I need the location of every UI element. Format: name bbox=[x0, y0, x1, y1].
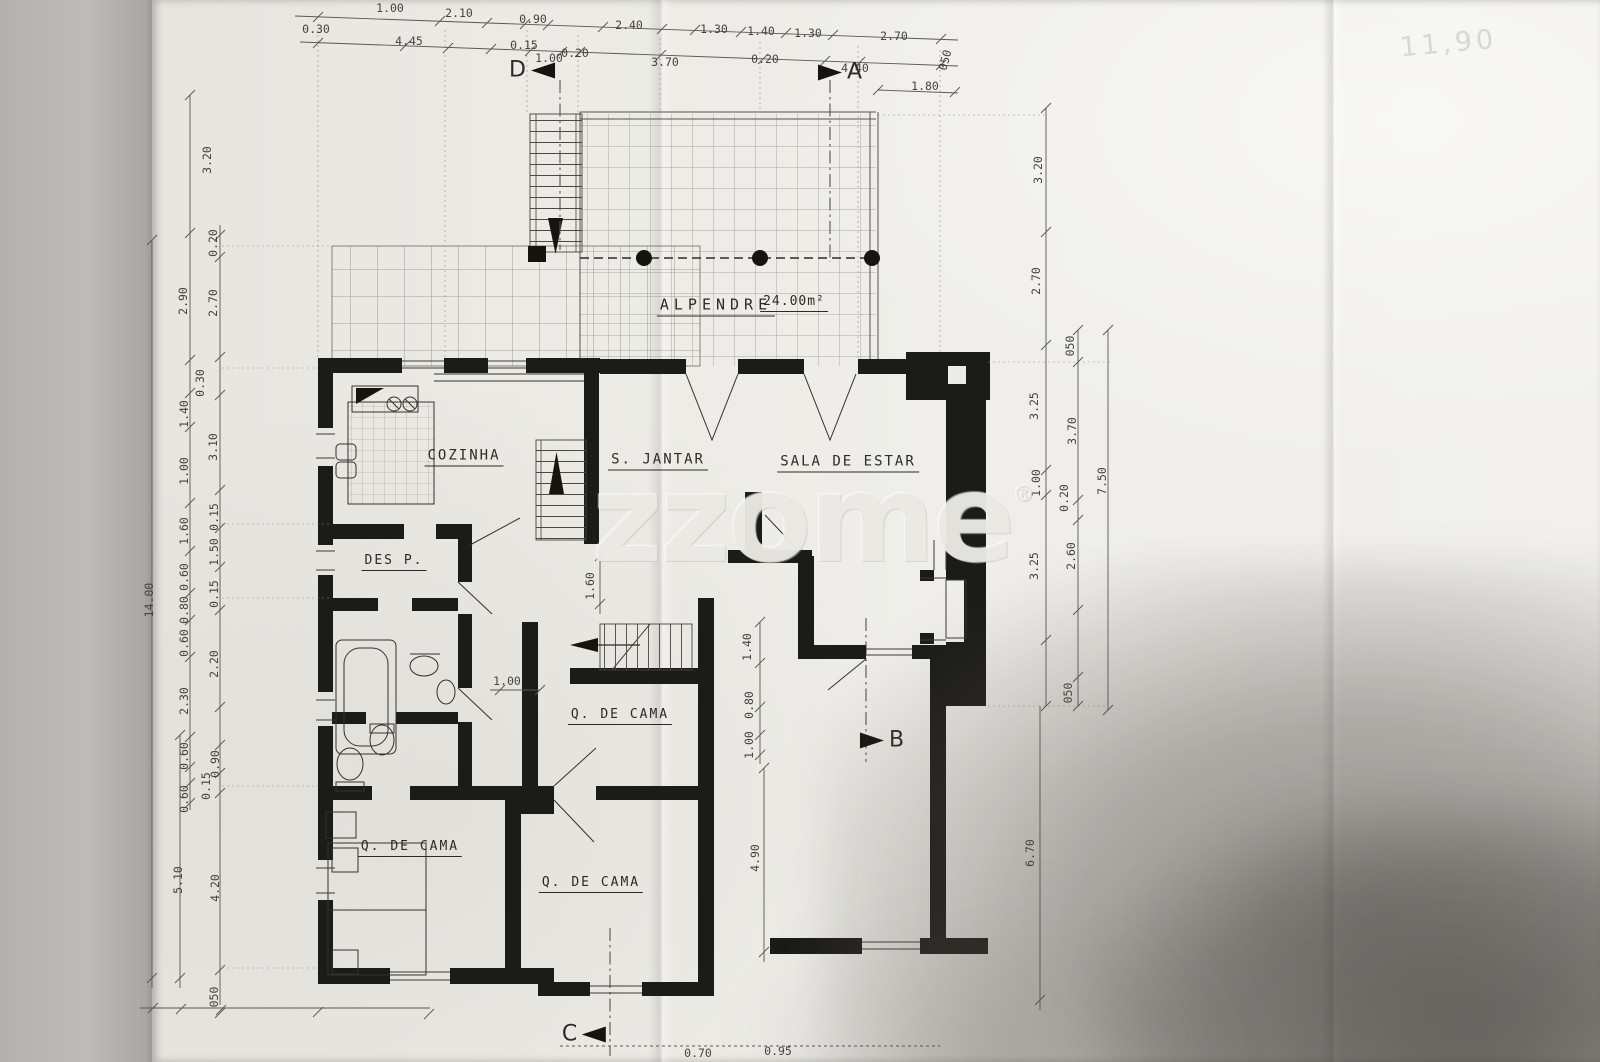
dimension-label: 3.20 bbox=[200, 146, 214, 174]
dimension-label: 0.60 bbox=[177, 563, 191, 591]
dimension-label: 1.80 bbox=[911, 79, 939, 93]
entrance-stairs bbox=[528, 114, 582, 262]
dimension-label: 0.15 bbox=[207, 503, 221, 531]
corner-window bbox=[948, 366, 966, 384]
room-label: ALPENDRE bbox=[657, 296, 775, 317]
dimension-label: 1.40 bbox=[747, 24, 775, 38]
dimension-label: 0.60 bbox=[177, 629, 191, 657]
dimension-label: 1.00 bbox=[376, 1, 404, 15]
section-marker-a: A bbox=[818, 60, 862, 85]
floor-plan-photo: 1.002.100.902.401.301.401.302.700.304.45… bbox=[0, 0, 1600, 1062]
dimension-label: 2.60 bbox=[1064, 542, 1078, 570]
dimension-label: 0.90 bbox=[519, 12, 547, 26]
dimension-label: 050 bbox=[1061, 683, 1075, 704]
dimension-label: 050 bbox=[207, 987, 221, 1008]
dimension-label: 0.60 bbox=[177, 742, 191, 770]
section-marker-b: B bbox=[860, 728, 904, 753]
zome-watermark: zzome® bbox=[592, 448, 1035, 590]
dimension-label: 1.00 bbox=[742, 731, 756, 759]
room-label: Q. DE CAMA bbox=[568, 707, 672, 725]
section-letter: C bbox=[562, 1022, 577, 1047]
dimension-label: 050 bbox=[1063, 336, 1077, 357]
dimension-label: 5.10 bbox=[171, 866, 185, 894]
room-label: COZINHA bbox=[424, 448, 503, 467]
dimension-label: 1.50 bbox=[207, 538, 221, 566]
dimension-label: 0.20 bbox=[751, 52, 779, 66]
dimension-label: 0.70 bbox=[684, 1046, 712, 1060]
dimension-label: 2.10 bbox=[445, 6, 473, 20]
section-letter: D bbox=[509, 58, 526, 83]
section-flag-icon bbox=[582, 1026, 606, 1042]
dimension-label: 3.10 bbox=[206, 433, 220, 461]
dimension-label: 2.20 bbox=[207, 650, 221, 678]
dimension-label: 1.40 bbox=[177, 400, 191, 428]
dimension-label: 2.40 bbox=[615, 18, 643, 32]
room-label: DES P. bbox=[362, 553, 427, 571]
section-marker-c: C bbox=[562, 1022, 606, 1047]
dimension-label: 2.70 bbox=[206, 289, 220, 317]
dimension-label: 7.50 bbox=[1095, 467, 1109, 495]
dimension-label: 2.90 bbox=[176, 287, 190, 315]
dimension-label: 0.30 bbox=[302, 22, 330, 36]
terrace-tile-grids bbox=[332, 112, 880, 368]
registered-mark-icon: ® bbox=[1013, 482, 1035, 507]
dimension-label: 0.15 bbox=[207, 580, 221, 608]
dimension-label: 3.20 bbox=[1031, 156, 1045, 184]
section-flag-icon bbox=[860, 732, 884, 748]
dimension-label: 3.25 bbox=[1027, 392, 1041, 420]
dimension-label: 1.00 bbox=[493, 674, 521, 688]
dimension-label: 1.00 bbox=[177, 457, 191, 485]
room-label: Q. DE CAMA bbox=[539, 875, 643, 893]
dimension-label: 0.20 bbox=[561, 46, 589, 60]
dimension-label: 0.15 bbox=[510, 38, 538, 52]
dimension-label: 4.90 bbox=[748, 844, 762, 872]
dimension-label: 3.70 bbox=[651, 55, 679, 69]
room-label: Q. DE CAMA bbox=[358, 839, 462, 857]
dimension-label: 0.80 bbox=[742, 691, 756, 719]
beds bbox=[326, 812, 426, 975]
dimension-label: 6.70 bbox=[1023, 839, 1037, 867]
dimension-label: 4.20 bbox=[208, 874, 222, 902]
dimension-label: 0.30 bbox=[193, 369, 207, 397]
section-letter: B bbox=[889, 728, 904, 753]
dimension-label: 2.70 bbox=[880, 29, 908, 43]
dimension-label: 0.20 bbox=[206, 229, 220, 257]
dimension-label: 0.60 bbox=[177, 785, 191, 813]
dimension-label: 1.30 bbox=[794, 26, 822, 40]
section-flag-icon bbox=[531, 62, 555, 78]
dimension-label: 1.40 bbox=[740, 633, 754, 661]
dimension-label: 0.95 bbox=[764, 1044, 792, 1058]
dimension-label: 2.30 bbox=[177, 687, 191, 715]
dimension-label: 14.00 bbox=[142, 583, 156, 618]
dimension-label: 4.45 bbox=[395, 34, 423, 48]
section-flag-icon bbox=[818, 64, 842, 80]
dimension-label: 3.70 bbox=[1065, 417, 1079, 445]
dimension-label: 0.80 bbox=[177, 596, 191, 624]
dimension-label: 0.15 bbox=[199, 772, 213, 800]
dimension-label: 1.60 bbox=[177, 517, 191, 545]
room-label: 24.00m² bbox=[760, 294, 828, 312]
dimension-label: 1.30 bbox=[700, 22, 728, 36]
section-marker-d: D bbox=[509, 58, 555, 83]
dimension-label: 0.20 bbox=[1057, 484, 1071, 512]
dimension-label: 2.70 bbox=[1029, 267, 1043, 295]
section-letter: A bbox=[847, 60, 862, 85]
